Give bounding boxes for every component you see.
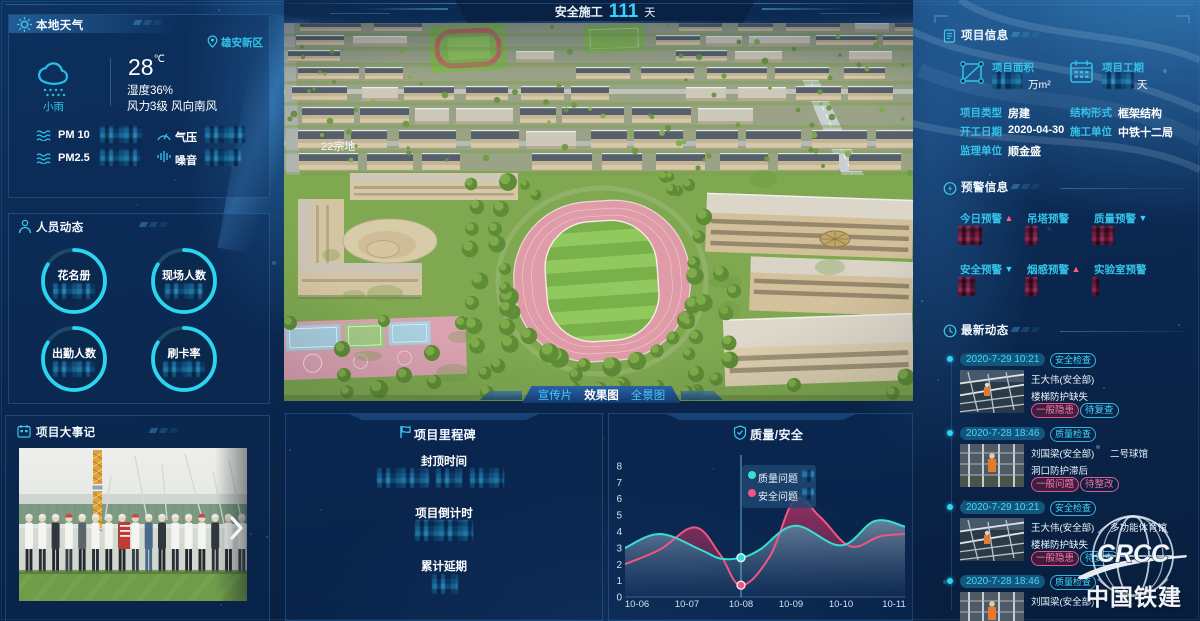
svg-text:8: 8 [616, 462, 622, 473]
svg-text:10-07: 10-07 [675, 599, 699, 610]
svg-text:4: 4 [616, 527, 622, 538]
svg-text:10-11: 10-11 [882, 599, 906, 610]
svg-text:0: 0 [616, 593, 622, 604]
svg-text:3: 3 [616, 543, 622, 554]
svg-text:10-10: 10-10 [829, 599, 853, 610]
svg-text:1: 1 [616, 576, 622, 587]
svg-text:10-08: 10-08 [729, 599, 753, 610]
svg-text:6: 6 [616, 494, 622, 505]
svg-text:7: 7 [616, 478, 622, 489]
svg-text:10-06: 10-06 [625, 599, 649, 610]
svg-text:CRCC: CRCC [1097, 540, 1170, 568]
svg-text:10-09: 10-09 [779, 599, 803, 610]
svg-text:2: 2 [616, 560, 622, 571]
svg-text:5: 5 [616, 511, 622, 522]
